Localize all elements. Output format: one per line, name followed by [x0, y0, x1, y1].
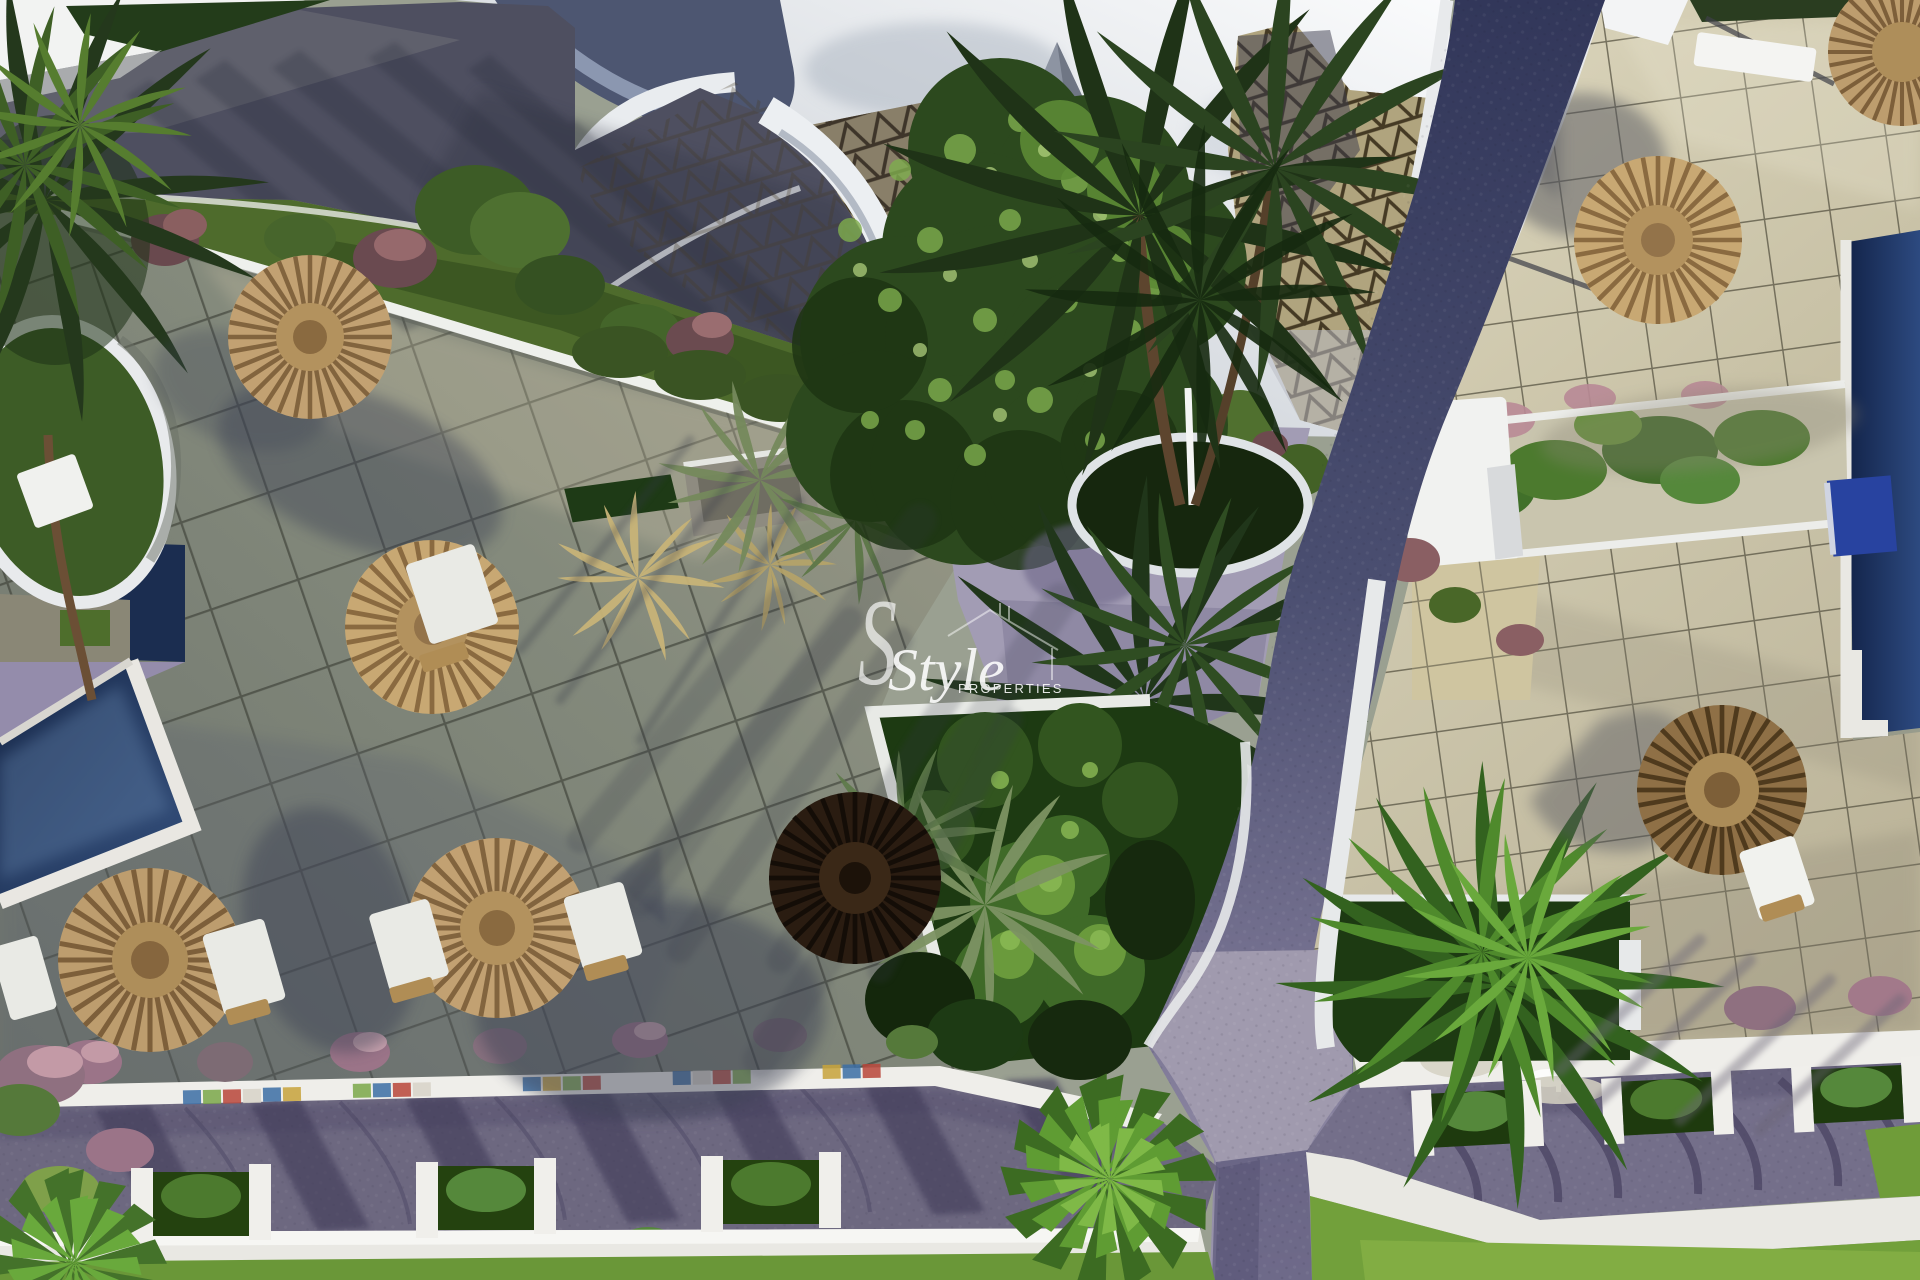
svg-text:PROPERTIES: PROPERTIES [958, 681, 1064, 696]
